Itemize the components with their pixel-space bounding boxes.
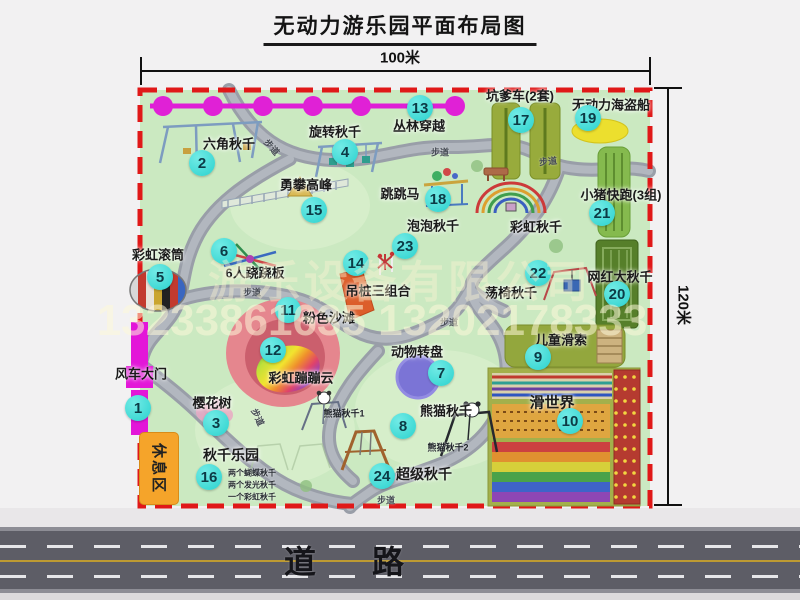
rest-area: 休息区 — [139, 432, 179, 505]
page-title: 无动力游乐园平面布局图 — [264, 10, 537, 46]
pirate-ship-shape — [572, 119, 628, 143]
kids-zipline-shape — [505, 325, 625, 367]
park-layout-page: 无动力游乐园平面布局图 100米 120米 — [0, 0, 800, 600]
animal-carousel-shape — [397, 356, 439, 398]
road: 道路 — [0, 527, 800, 593]
dimension-label-width: 100米 — [380, 47, 420, 68]
pink-beach-shape — [226, 299, 340, 407]
dimension-label-height: 120米 — [674, 285, 695, 325]
piggy-run-shape — [598, 147, 630, 237]
slide-world-shape — [488, 368, 640, 506]
road-label: 道路 — [284, 537, 460, 583]
big-swing-shape — [596, 240, 638, 328]
rest-area-label: 休息区 — [149, 443, 170, 494]
